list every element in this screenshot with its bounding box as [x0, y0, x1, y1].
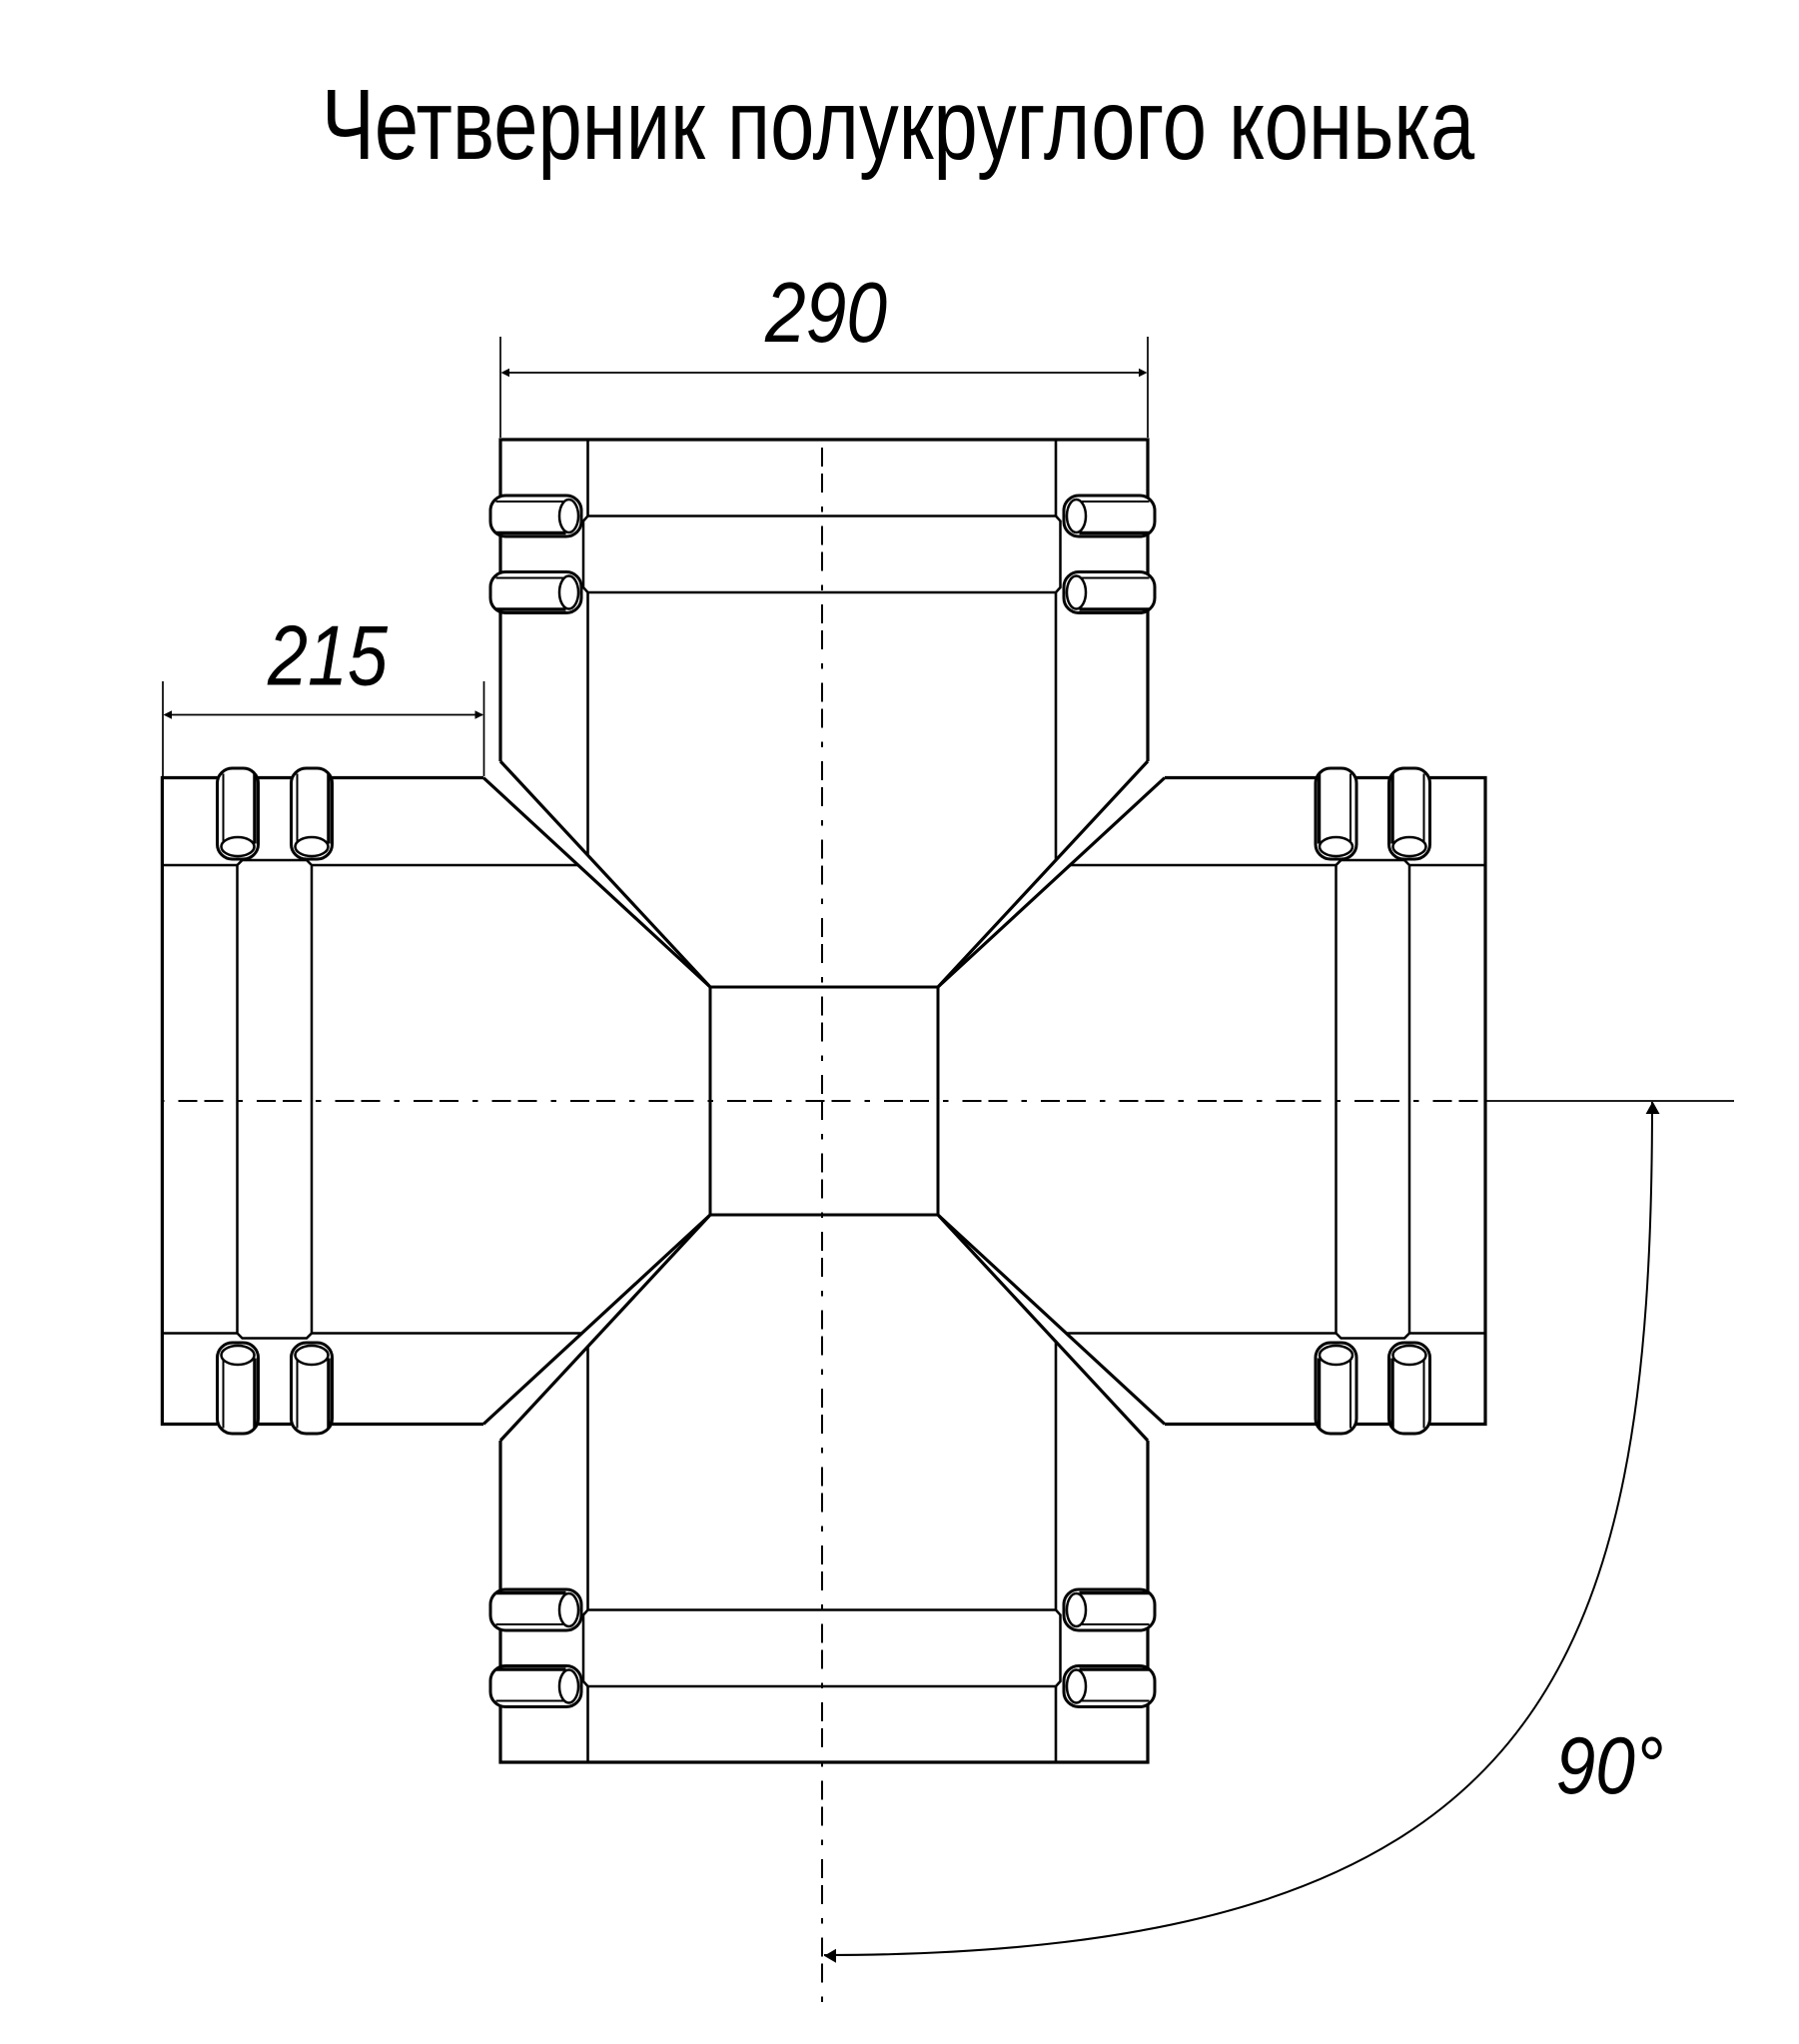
svg-text:290: 290 [764, 265, 887, 360]
svg-text:Четверник полукруглого конька: Четверник полукруглого конька [322, 69, 1475, 181]
svg-text:215: 215 [267, 608, 388, 703]
svg-text:90°: 90° [1556, 1721, 1664, 1811]
